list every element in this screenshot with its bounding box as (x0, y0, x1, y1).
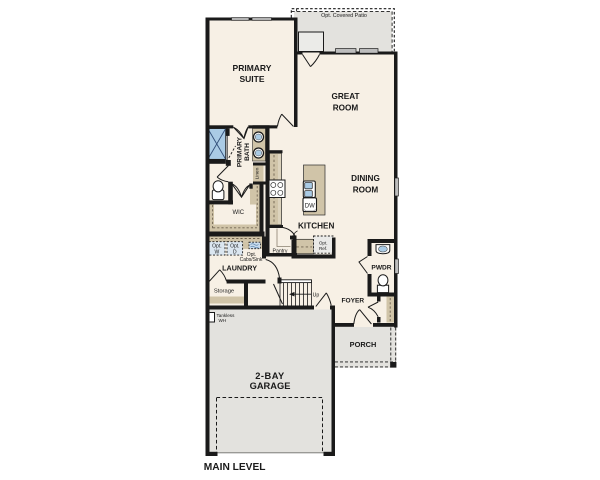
svg-text:PWDR: PWDR (371, 265, 391, 272)
svg-text:DW: DW (305, 203, 315, 209)
svg-text:GARAGE: GARAGE (250, 381, 291, 391)
svg-text:KITCHEN: KITCHEN (298, 222, 334, 231)
svg-text:Ref.: Ref. (319, 246, 327, 251)
svg-text:Opt. Covered Patio: Opt. Covered Patio (321, 13, 367, 19)
svg-text:D: D (233, 250, 237, 256)
svg-text:Opt.: Opt. (319, 241, 328, 246)
svg-text:MAIN LEVEL: MAIN LEVEL (204, 462, 266, 473)
svg-text:ROOM: ROOM (353, 185, 379, 194)
svg-text:WH: WH (219, 318, 227, 323)
svg-text:ROOM: ROOM (333, 104, 359, 113)
svg-text:BATH: BATH (244, 143, 251, 161)
svg-text:PRIMARY: PRIMARY (233, 63, 272, 73)
svg-text:PRIMARY: PRIMARY (237, 136, 244, 167)
svg-text:Up: Up (313, 292, 320, 298)
svg-text:Pantry: Pantry (273, 248, 288, 254)
svg-text:WIC: WIC (232, 210, 244, 216)
svg-text:DINING: DINING (351, 174, 380, 183)
svg-text:FOYER: FOYER (341, 298, 364, 305)
svg-text:GREAT: GREAT (331, 92, 359, 101)
svg-text:2-BAY: 2-BAY (255, 371, 285, 381)
svg-text:LAUNDRY: LAUNDRY (222, 263, 257, 272)
svg-text:Linen: Linen (255, 167, 261, 179)
svg-text:Storage: Storage (214, 289, 234, 295)
svg-text:W: W (215, 250, 220, 256)
svg-text:Cabs/Sink: Cabs/Sink (240, 257, 263, 263)
svg-text:SUITE: SUITE (239, 74, 264, 84)
svg-text:PORCH: PORCH (350, 340, 377, 349)
